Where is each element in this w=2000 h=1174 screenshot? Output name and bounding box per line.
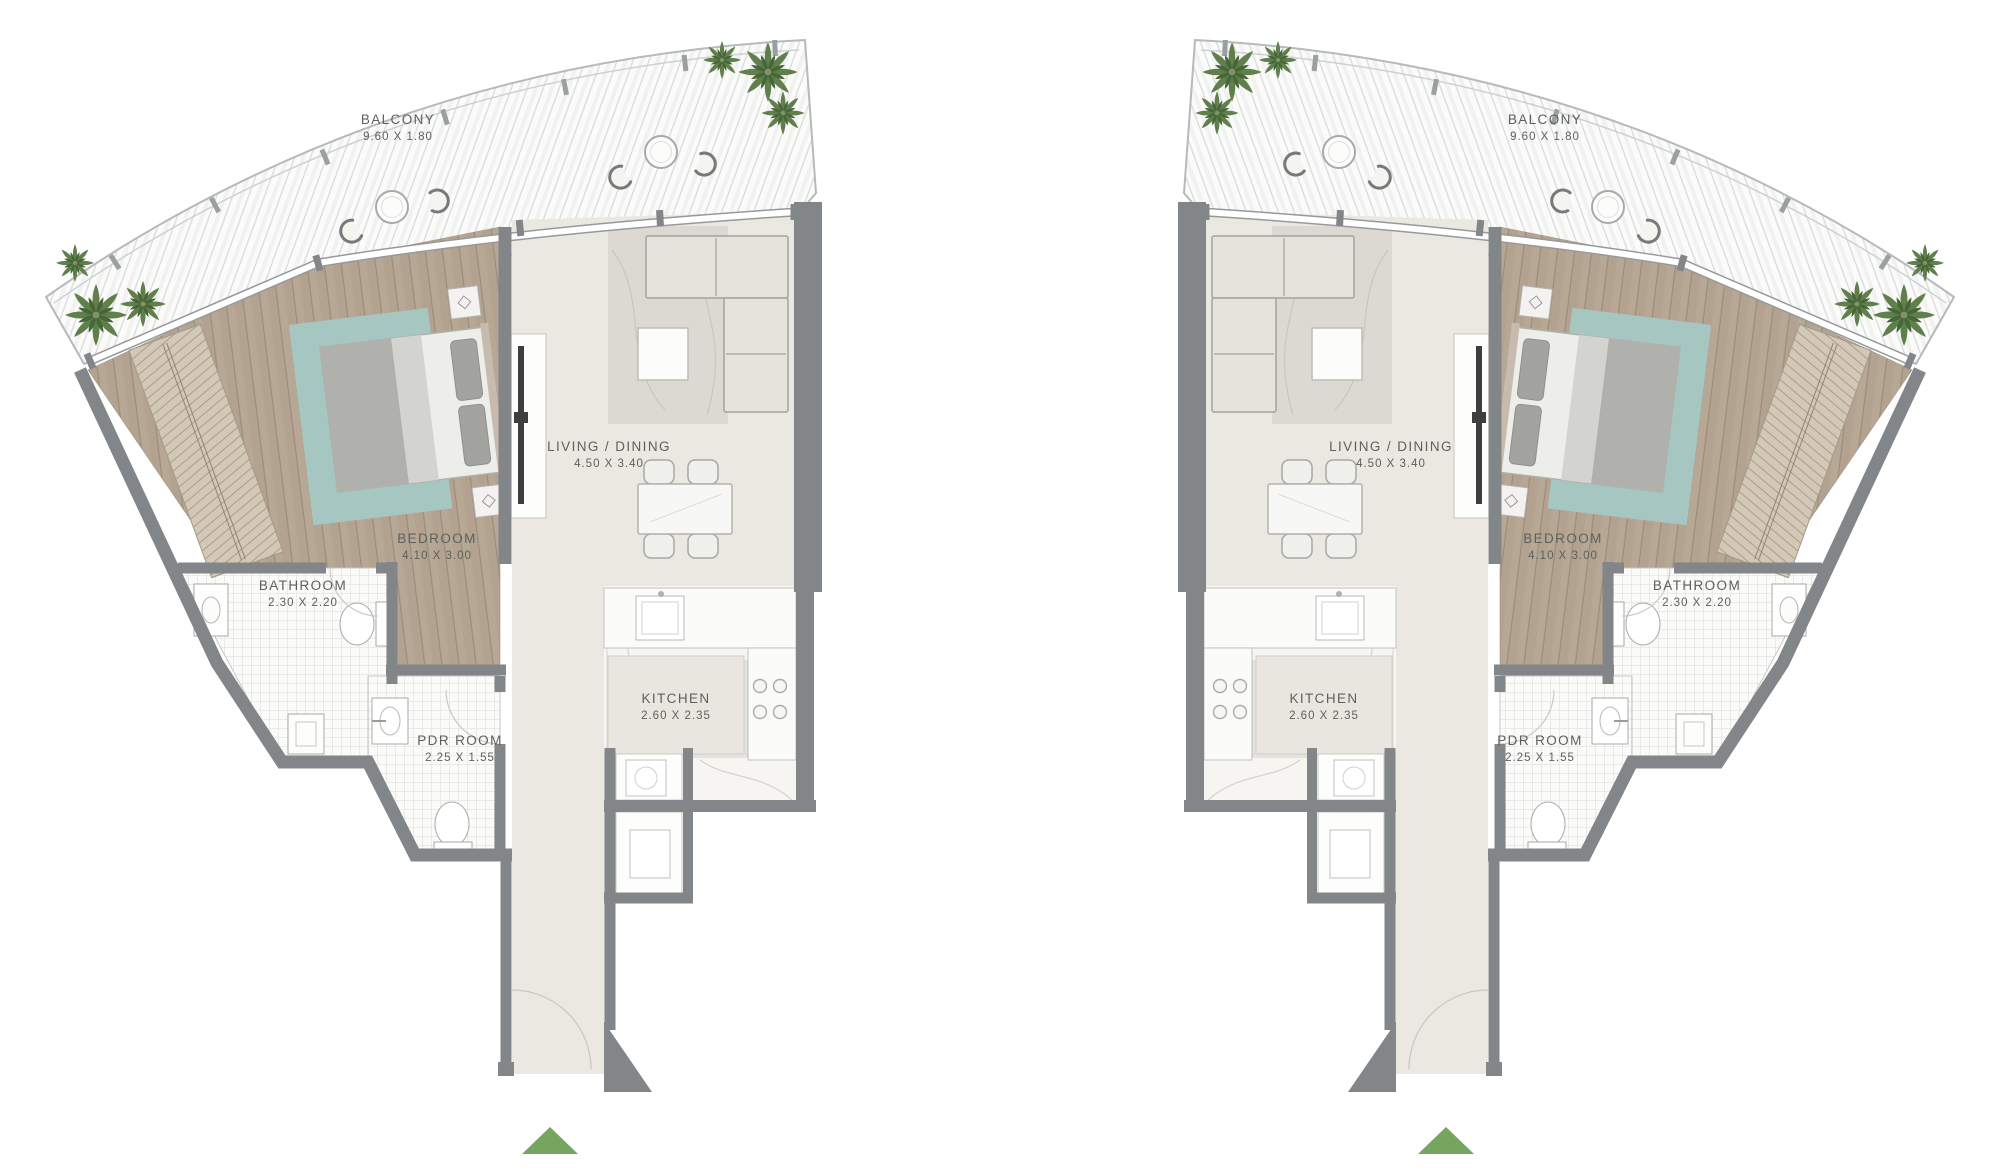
pdr-size: 2.25 X 1.55 [425,752,495,764]
living-label: LIVING / DINING [1329,439,1453,454]
bedroom-size: 4.10 X 3.00 [402,550,472,562]
bathroom-label: BATHROOM [259,578,347,593]
living-label: LIVING / DINING [547,439,671,454]
entry-arrow-left [522,1127,578,1154]
balcony-size: 9.60 X 1.80 [1510,131,1580,143]
balcony-label: BALCONY [361,112,435,127]
kitchen-label: KITCHEN [1289,691,1358,706]
pdr-label: PDR ROOM [417,733,502,748]
pdr-label: PDR ROOM [1497,733,1582,748]
bedroom-label: BEDROOM [1523,531,1603,546]
bathroom-size: 2.30 X 2.20 [268,597,338,609]
bathroom-size: 2.30 X 2.20 [1662,597,1732,609]
floor-plan-sheet: BALCONY 9.60 X 1.80 LIVING / DINING 4.50… [0,0,2000,1174]
kitchen-size: 2.60 X 2.35 [1289,710,1359,722]
balcony-size: 9.60 X 1.80 [363,131,433,143]
living-size: 4.50 X 3.40 [1356,458,1426,470]
unit-right [1178,40,1954,1092]
bedroom-size: 4.10 X 3.00 [1528,550,1598,562]
living-size: 4.50 X 3.40 [574,458,644,470]
bathroom-label: BATHROOM [1653,578,1741,593]
unit-left [46,40,822,1092]
floor-plans-canvas: BALCONY 9.60 X 1.80 LIVING / DINING 4.50… [0,0,2000,1174]
entry-arrow-right [1418,1127,1474,1154]
pdr-size: 2.25 X 1.55 [1505,752,1575,764]
kitchen-label: KITCHEN [641,691,710,706]
kitchen-size: 2.60 X 2.35 [641,710,711,722]
bedroom-label: BEDROOM [397,531,477,546]
balcony-label: BALCONY [1508,112,1582,127]
